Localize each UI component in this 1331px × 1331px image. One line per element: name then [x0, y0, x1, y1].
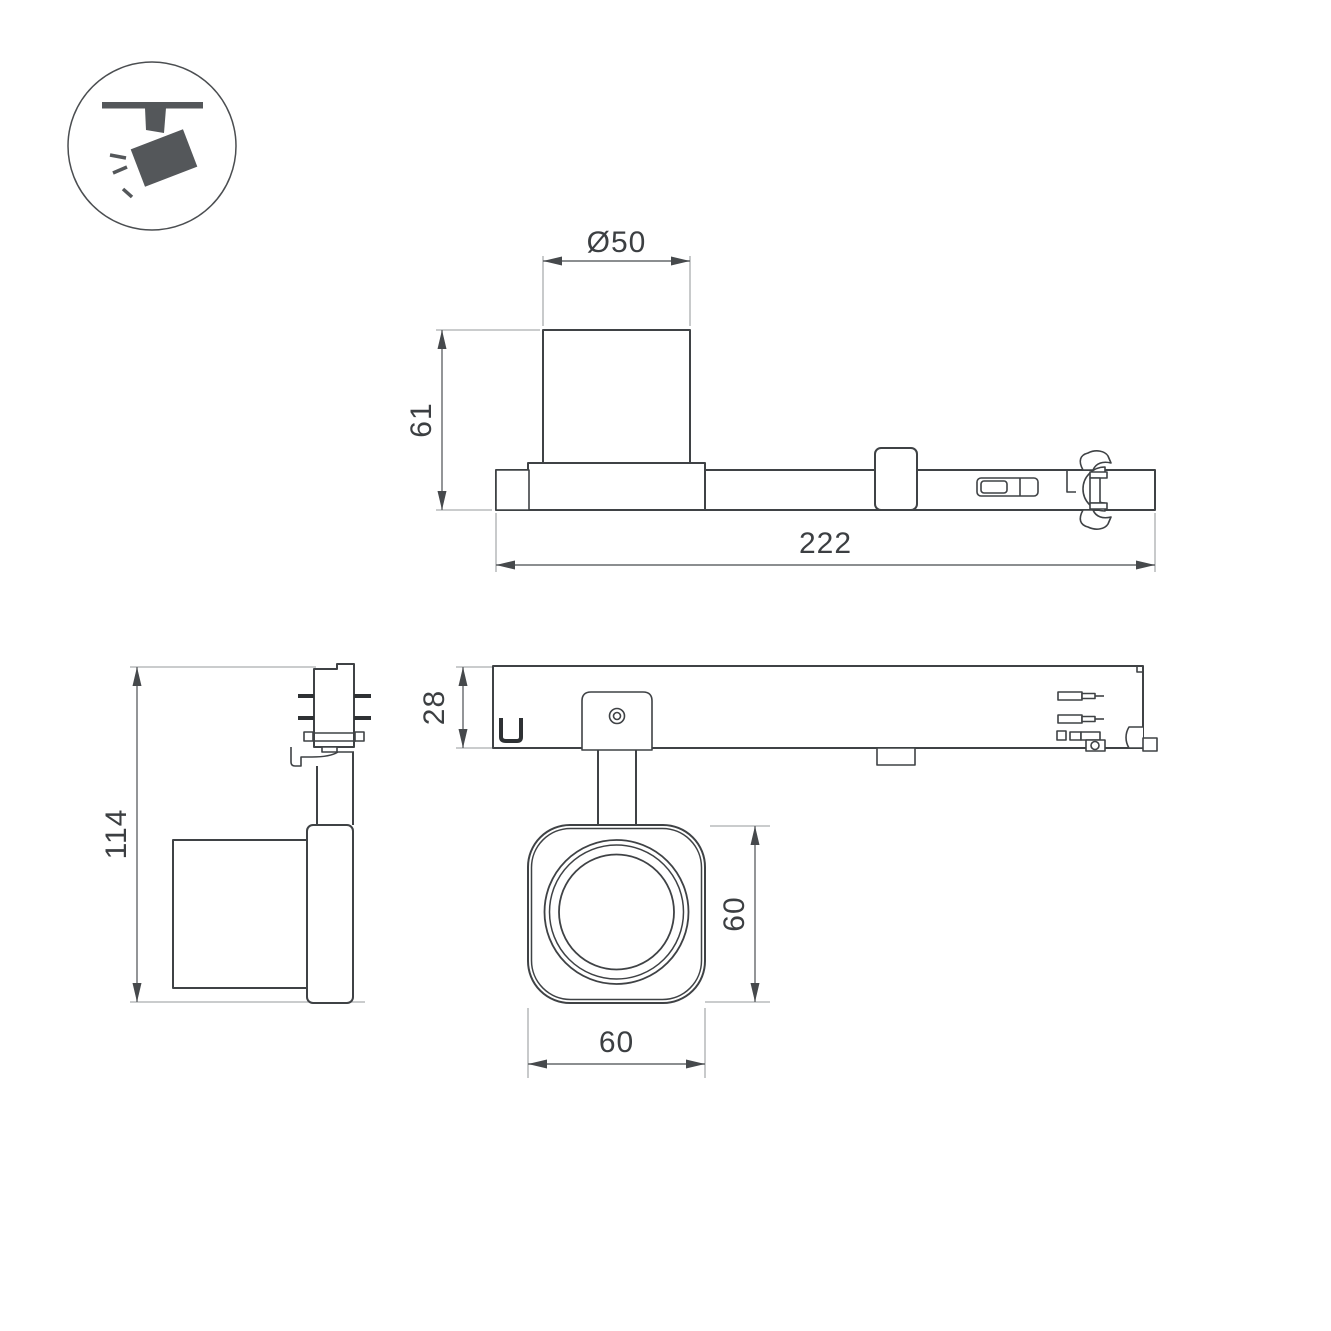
- icon-stem: [145, 108, 166, 133]
- latch-bracket-stem: [1090, 478, 1100, 503]
- arrow-down: [133, 983, 142, 1002]
- product-icon: [68, 62, 236, 230]
- arrow-down: [751, 983, 760, 1002]
- boss-tab-plan: [877, 748, 915, 765]
- latch-tab-plan: [1143, 738, 1157, 751]
- lamp-head-front: [528, 825, 705, 1003]
- arrow-right: [1136, 561, 1155, 570]
- flange-tab: [304, 732, 313, 741]
- latch-top-wing: [1080, 451, 1111, 470]
- dim-label-head-height: 60: [718, 896, 751, 931]
- arrow-up: [133, 667, 142, 686]
- terminal-wide: [1081, 732, 1100, 740]
- terminal-small: [1070, 732, 1081, 740]
- latch-bracket-bottom: [1090, 503, 1107, 509]
- lamp-cylinder: [543, 330, 690, 463]
- ceiling-bar-icon: [102, 102, 203, 109]
- arrow-up: [459, 667, 468, 686]
- terminal-square: [1057, 731, 1066, 740]
- arrow-left: [528, 1060, 547, 1069]
- arrow-up: [438, 330, 447, 349]
- arrow-up: [751, 826, 760, 845]
- latch-bracket-top: [1090, 472, 1107, 478]
- screw-small: [1091, 742, 1099, 750]
- underside-notch: [322, 747, 337, 752]
- side-view: Ø50 61 222: [405, 226, 1155, 572]
- mounting-boss: [875, 448, 917, 510]
- drawing-canvas: Ø50 61 222 114: [0, 0, 1331, 1331]
- arrow-right: [686, 1060, 705, 1069]
- bar-left-cap: [496, 470, 529, 510]
- end-view: 114: [100, 664, 371, 1003]
- contact-pin-plan: [1058, 692, 1082, 700]
- dim-label-height: 61: [405, 402, 438, 437]
- arrow-left: [496, 561, 515, 570]
- contact-pin-tip: [1082, 717, 1095, 722]
- track-adapter-body: [314, 664, 354, 747]
- arrow-down: [438, 491, 447, 510]
- lamp-base-flange: [528, 463, 705, 510]
- latch-bottom-wing: [1080, 510, 1111, 529]
- contact-pin-plan: [1058, 715, 1082, 723]
- latch-round-plan: [1126, 727, 1143, 748]
- arrow-left: [543, 257, 562, 266]
- bottom-view: 28 60 60: [418, 666, 1157, 1078]
- dim-label-diameter: Ø50: [587, 226, 647, 259]
- dimension-drawing: Ø50 61 222 114: [0, 0, 1331, 1331]
- switch-knob: [981, 481, 1007, 493]
- dim-label-length: 222: [799, 527, 852, 560]
- arrow-right: [671, 257, 690, 266]
- lamp-head-side: [307, 825, 353, 1003]
- dim-label-track-width: 28: [418, 690, 451, 725]
- contact-pin-tip: [1082, 694, 1095, 699]
- lamp-barrel: [173, 840, 307, 988]
- arrow-down: [459, 729, 468, 748]
- screw-drive: [614, 713, 621, 720]
- dim-label-overall-height: 114: [100, 809, 133, 860]
- flange-tab: [355, 732, 364, 741]
- dim-label-head-width: 60: [599, 1026, 634, 1059]
